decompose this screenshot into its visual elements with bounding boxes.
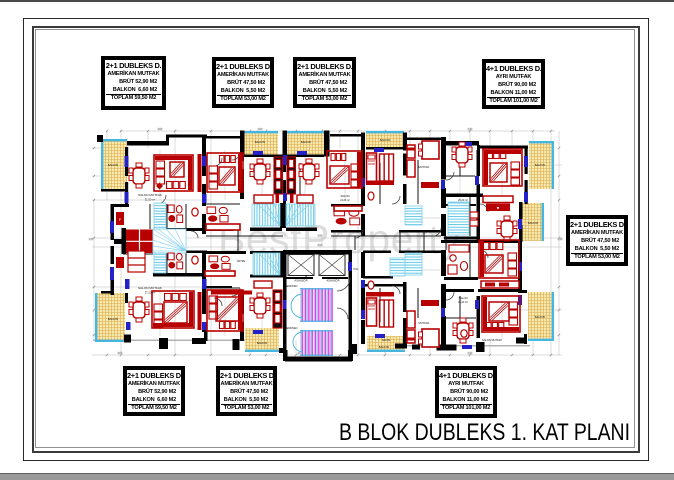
svg-text:ANTRE: ANTRE — [237, 260, 246, 263]
svg-text:160: 160 — [258, 127, 263, 131]
svg-text:MERDİVEN: MERDİVEN — [285, 285, 298, 288]
svg-text:BALKON: BALKON — [108, 318, 118, 321]
svg-text:HOL: HOL — [354, 268, 360, 271]
svg-text:BALKON: BALKON — [301, 141, 311, 144]
svg-text:225: 225 — [468, 127, 473, 131]
svg-text:BALKON: BALKON — [528, 222, 538, 225]
svg-text:27,20 m²: 27,20 m² — [145, 291, 156, 295]
svg-text:120: 120 — [89, 237, 94, 241]
svg-text:BALKON: BALKON — [380, 139, 390, 142]
svg-text:SALON: SALON — [458, 296, 467, 300]
svg-text:BALKON: BALKON — [535, 316, 545, 319]
svg-text:225: 225 — [468, 351, 473, 355]
svg-text:21,20 m²: 21,20 m² — [340, 199, 350, 202]
svg-text:SALON MUTFAK: SALON MUTFAK — [138, 193, 163, 197]
svg-text:BALKON: BALKON — [379, 346, 389, 349]
svg-text:SALON: SALON — [382, 339, 390, 342]
svg-text:BALKON: BALKON — [257, 342, 267, 345]
svg-text:BALKON: BALKON — [108, 164, 118, 167]
svg-text:ASANSÖR: ASANSÖR — [326, 279, 339, 283]
svg-text:BALKON: BALKON — [255, 141, 265, 144]
svg-text:BALKON: BALKON — [535, 164, 545, 167]
svg-text:365: 365 — [158, 127, 163, 131]
svg-text:26,20 m²: 26,20 m² — [458, 199, 468, 202]
svg-text:SALON: SALON — [340, 194, 349, 198]
svg-text:MERDİVEN: MERDİVEN — [285, 327, 298, 330]
svg-text:ASANSÖR: ASANSÖR — [294, 279, 307, 283]
svg-text:310: 310 — [318, 243, 323, 247]
svg-text:120: 120 — [558, 237, 563, 241]
svg-text:SALON MUTFAK: SALON MUTFAK — [482, 338, 502, 342]
svg-text:21,50 m²: 21,50 m² — [145, 198, 156, 202]
svg-text:26,20 m²: 26,20 m² — [458, 301, 468, 304]
svg-text:SALON MUTFAK: SALON MUTFAK — [138, 286, 163, 290]
svg-text:365: 365 — [118, 351, 123, 355]
svg-text:310: 310 — [318, 234, 323, 238]
svg-text:SALON: SALON — [458, 194, 467, 198]
svg-text:♥: ♥ — [497, 206, 500, 211]
svg-text:MUTFAK: MUTFAK — [419, 321, 430, 325]
svg-text:MUTFAK: MUTFAK — [419, 165, 430, 169]
